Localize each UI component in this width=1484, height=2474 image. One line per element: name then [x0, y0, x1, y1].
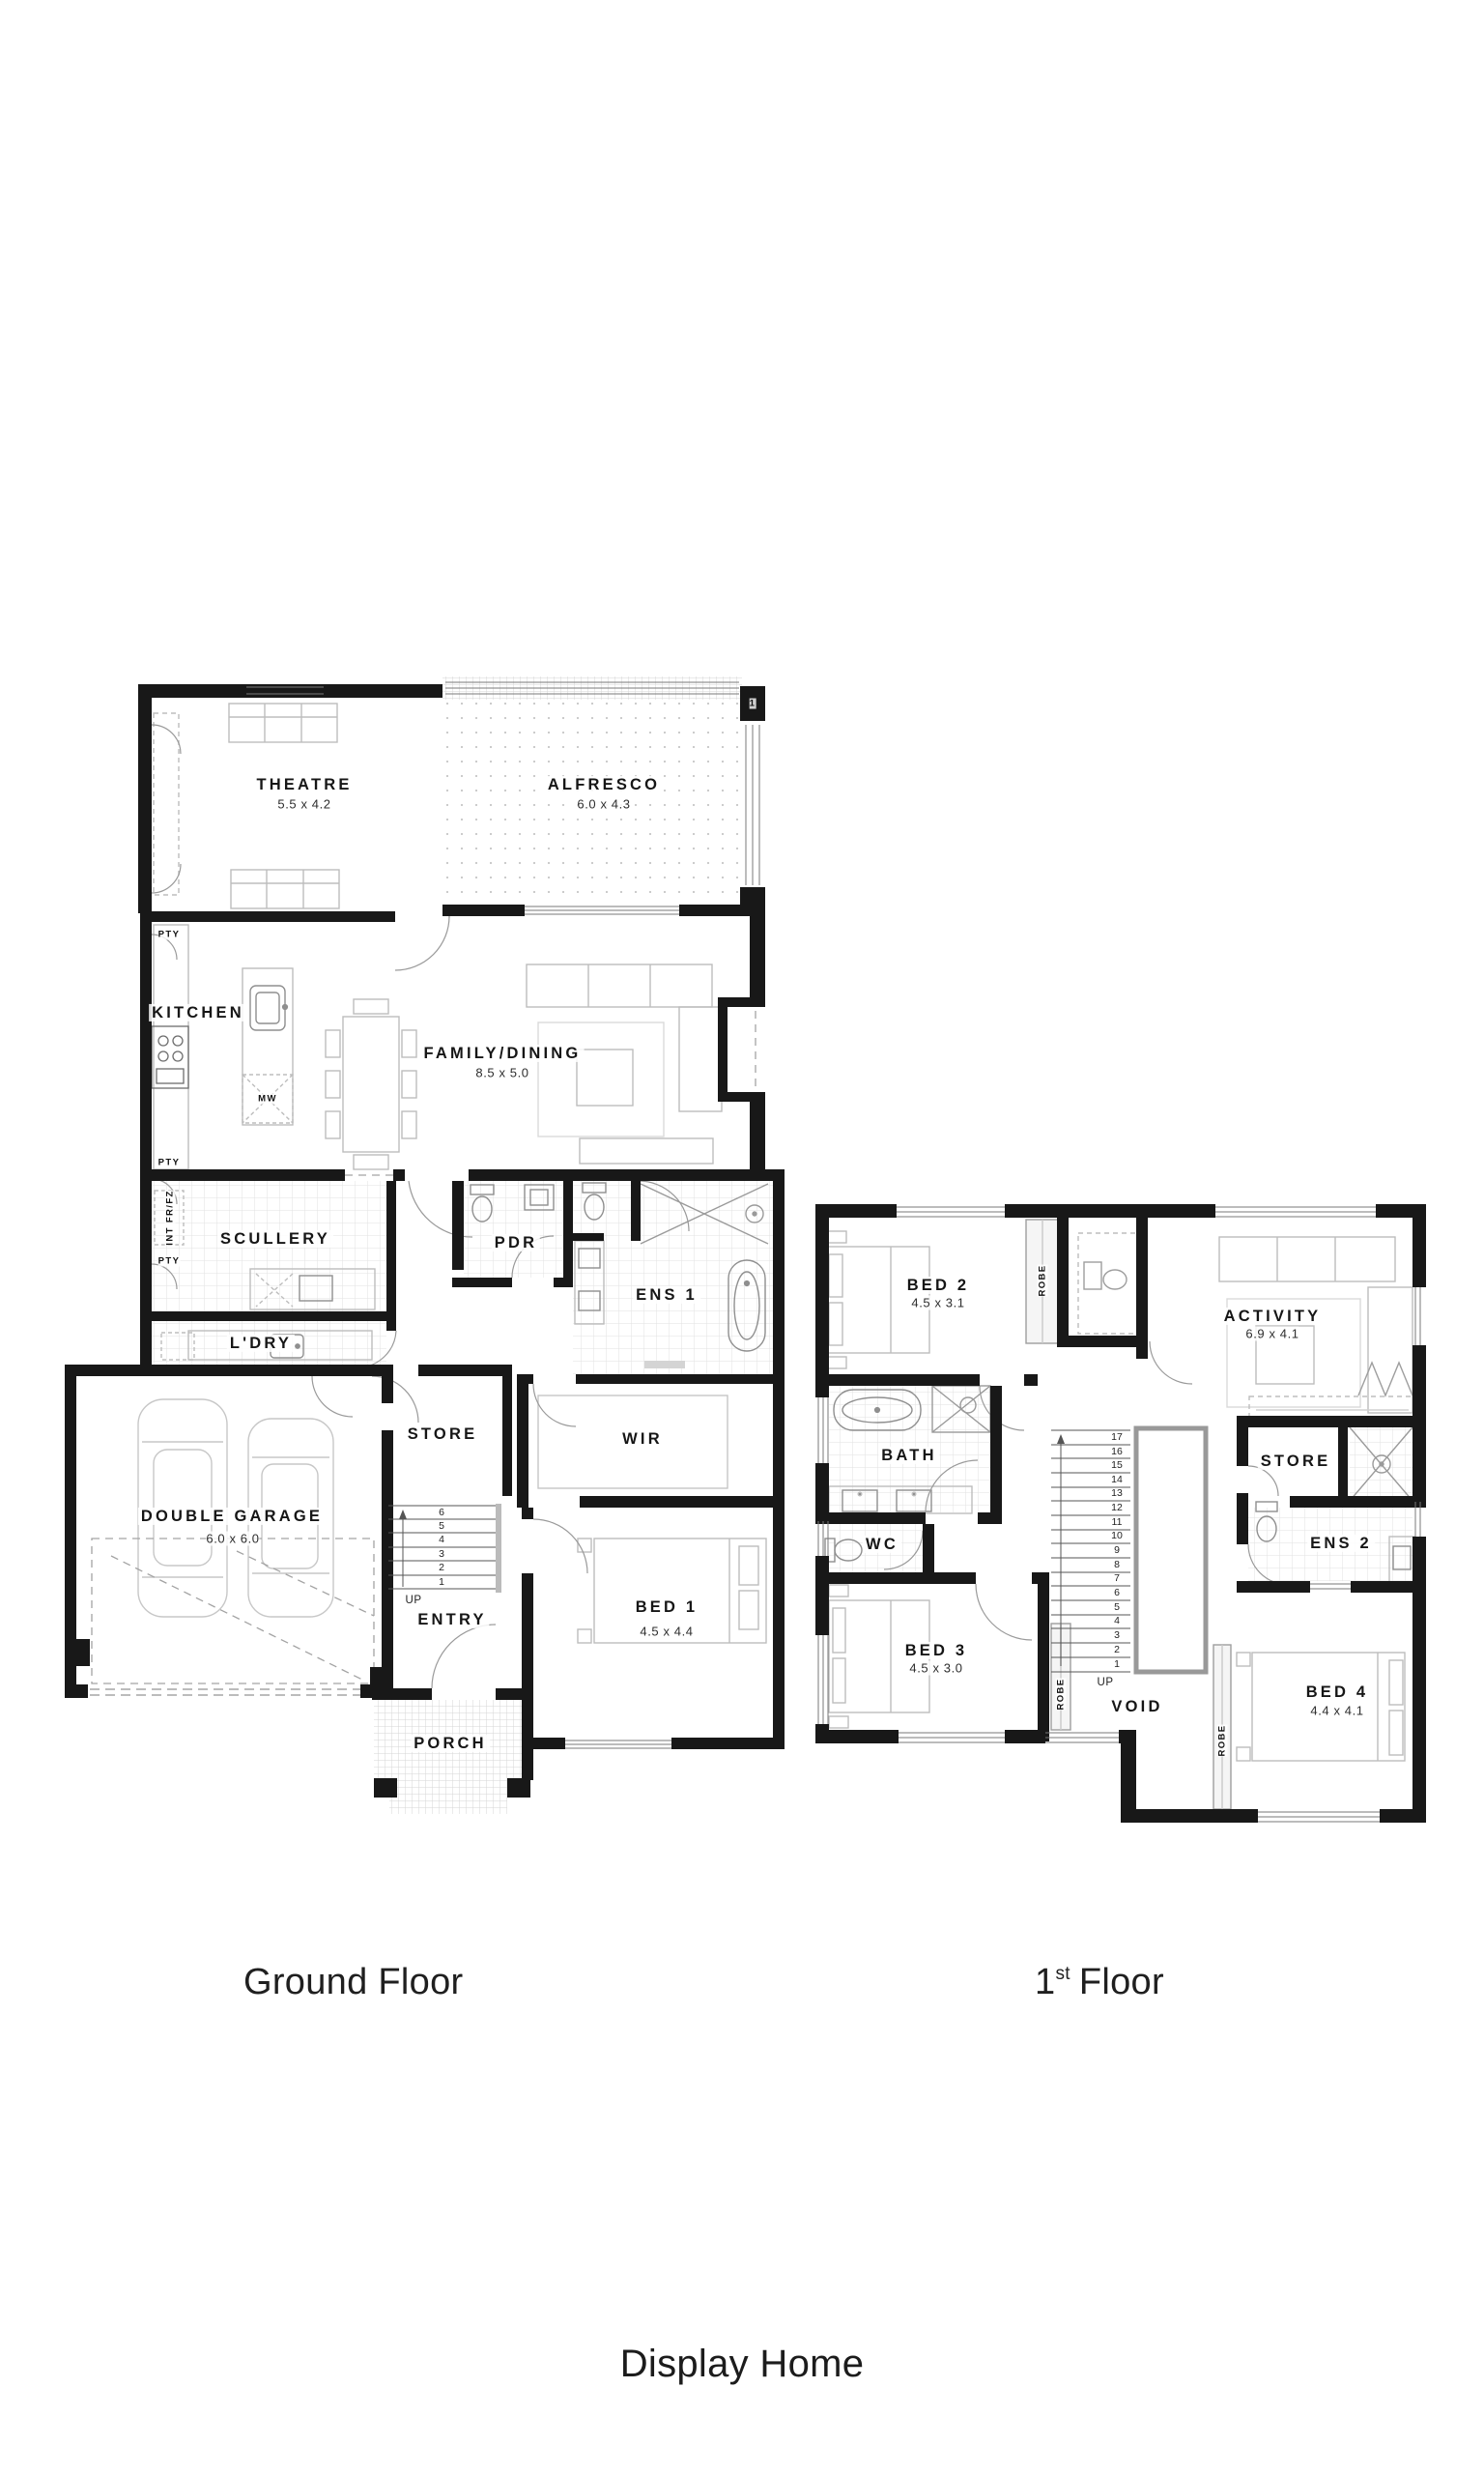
stair-number: 3	[1114, 1629, 1120, 1641]
first-floor-caption-sup: st	[1055, 1964, 1070, 1984]
room-label-bed3: BED 3	[902, 1642, 971, 1659]
stair-number: 10	[1111, 1530, 1123, 1541]
stair-number: 13	[1111, 1487, 1123, 1499]
room-label-bed4: BED 4	[1303, 1683, 1372, 1701]
stair-number: 5	[1114, 1601, 1120, 1613]
sofa-icon	[231, 870, 339, 908]
cooktop-icon	[152, 1026, 188, 1088]
room-label-activity: ACTIVITY	[1221, 1308, 1325, 1325]
first-floor-caption-num: 1	[1035, 1962, 1055, 2002]
room-label-wir: WIR	[619, 1430, 666, 1448]
robe-note-bed4: ROBE	[1217, 1724, 1228, 1756]
room-label-store-ground: STORE	[405, 1425, 481, 1443]
first-floor-drawing	[802, 1191, 1440, 1838]
room-label-garage: DOUBLE GARAGE	[138, 1508, 326, 1525]
room-label-store-first: STORE	[1258, 1453, 1334, 1470]
room-label-bed1: BED 1	[633, 1598, 701, 1616]
stair-number: 2	[1114, 1644, 1120, 1655]
stair-number: 1	[1114, 1658, 1120, 1670]
robe-note-bed3: ROBE	[1056, 1678, 1067, 1710]
stair-number: 1	[439, 1576, 444, 1588]
room-label-ldry: L'DRY	[227, 1335, 295, 1352]
sofa-icon	[229, 704, 337, 742]
room-dims-bed1: 4.5 x 4.4	[640, 1625, 693, 1639]
room-dims-garage: 6.0 x 6.0	[206, 1532, 259, 1546]
pty-note-1: PTY	[158, 930, 181, 940]
stair-number: 4	[439, 1534, 444, 1545]
stair-number: 2	[439, 1562, 444, 1573]
stair-number: 9	[1114, 1544, 1120, 1556]
dining-table-icon	[326, 999, 416, 1169]
up-note-ground: UP	[406, 1595, 422, 1606]
sink-icon	[250, 986, 287, 1030]
pty-note-2: PTY	[158, 1158, 181, 1168]
room-label-ens2: ENS 2	[1307, 1535, 1375, 1552]
room-label-scullery: SCULLERY	[217, 1230, 333, 1248]
ground-floor-caption: Ground Floor	[243, 1962, 463, 2003]
room-dims-family-dining: 8.5 x 5.0	[475, 1066, 528, 1080]
stair-number: 12	[1111, 1502, 1123, 1513]
first-floor-caption-tail: Floor	[1079, 1962, 1164, 2002]
room-dims-activity: 6.9 x 4.1	[1245, 1327, 1298, 1341]
room-label-bed2: BED 2	[904, 1277, 973, 1294]
room-label-pdr: PDR	[492, 1234, 540, 1251]
stair-number: 4	[1114, 1615, 1120, 1626]
fridge-note: INT FR/FZ	[165, 1190, 176, 1245]
stair-number: 6	[1114, 1587, 1120, 1598]
room-dims-bed4: 4.4 x 4.1	[1310, 1704, 1363, 1718]
ground-floor-plan: THEATRE 5.5 x 4.2 ALFRESCO 6.0 x 4.3 KIT…	[53, 657, 807, 1827]
room-label-entry: ENTRY	[414, 1611, 489, 1628]
room-dims-bed2: 4.5 x 3.1	[911, 1296, 964, 1310]
ground-floor-caption-text: Ground Floor	[243, 1962, 463, 2002]
room-label-void: VOID	[1108, 1698, 1165, 1715]
stair-number: 16	[1111, 1446, 1123, 1457]
stair-number: 17	[1111, 1431, 1123, 1443]
stair-number: 8	[1114, 1559, 1120, 1570]
room-label-bath: BATH	[878, 1447, 939, 1464]
stair-number: 11	[1112, 1516, 1123, 1528]
column-marker: 1	[750, 699, 756, 709]
room-label-wc: WC	[863, 1536, 901, 1553]
room-dims-alfresco: 6.0 x 4.3	[577, 797, 630, 812]
room-dims-bed3: 4.5 x 3.0	[909, 1661, 962, 1676]
stair-number: 14	[1111, 1474, 1123, 1485]
stair-number: 3	[439, 1548, 444, 1560]
pty-note-3: PTY	[158, 1256, 181, 1267]
stair-number: 7	[1114, 1572, 1120, 1584]
room-label-porch: PORCH	[411, 1735, 490, 1752]
page-title: Display Home	[620, 2343, 865, 2386]
room-label-theatre: THEATRE	[253, 776, 355, 793]
first-floor-caption: 1stFloor	[1035, 1962, 1164, 2003]
room-dims-theatre: 5.5 x 4.2	[277, 797, 330, 812]
stair-number: 6	[439, 1507, 444, 1518]
page-title-text: Display Home	[620, 2343, 865, 2385]
room-label-family-dining: FAMILY/DINING	[421, 1045, 585, 1062]
stair-number: 5	[439, 1520, 444, 1532]
stair-treads	[388, 1504, 501, 1593]
room-label-ens1: ENS 1	[633, 1286, 700, 1304]
microwave-note: MW	[258, 1094, 277, 1105]
first-floor-plan: BED 2 4.5 x 3.1 ACTIVITY 6.9 x 4.1 BATH …	[802, 1191, 1440, 1838]
floorplan-page: THEATRE 5.5 x 4.2 ALFRESCO 6.0 x 4.3 KIT…	[0, 0, 1484, 2474]
room-label-alfresco: ALFRESCO	[545, 776, 663, 793]
room-label-kitchen: KITCHEN	[149, 1004, 247, 1021]
stair-number: 15	[1111, 1459, 1123, 1471]
sofa-icon	[527, 964, 722, 1111]
stair-treads	[1051, 1428, 1206, 1672]
up-note-first: UP	[1098, 1677, 1114, 1688]
robe-note-bed2: ROBE	[1038, 1264, 1048, 1296]
